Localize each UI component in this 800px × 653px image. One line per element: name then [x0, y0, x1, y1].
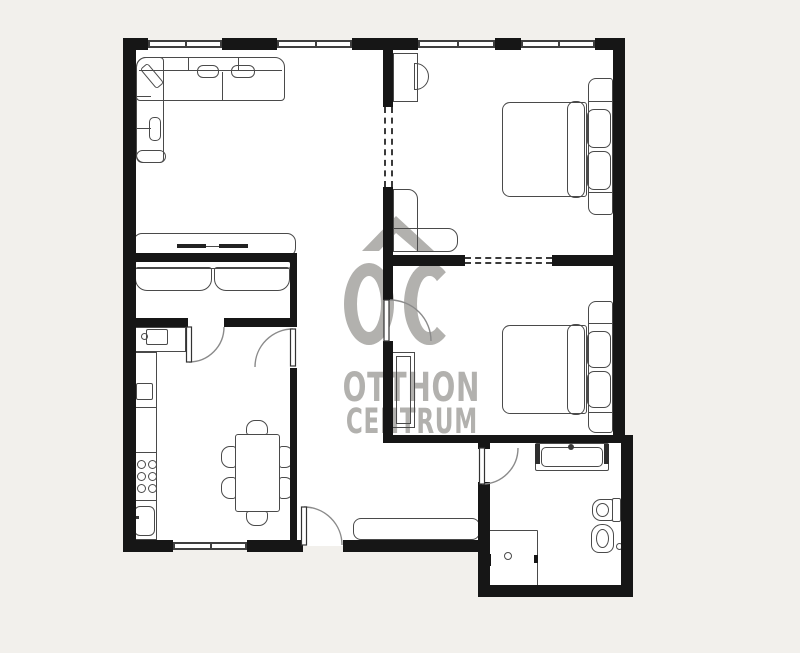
wall-bathroom-right	[621, 435, 633, 597]
wall-bathroom-top	[383, 435, 633, 443]
hob-burner-2	[148, 460, 157, 469]
window-top-3	[418, 40, 495, 48]
bed1-duvet-fold	[567, 101, 585, 198]
toilet-bowl-inner	[596, 503, 609, 517]
bed1-nightstand-line-top	[589, 101, 612, 102]
sofa-cushion-seam-1	[188, 58, 189, 71]
sofa-back-seam	[139, 70, 282, 71]
dining-chair-bottom	[246, 511, 268, 526]
wall-bedroom-divider-a	[390, 255, 465, 266]
bed2-pillow-2	[587, 371, 611, 408]
wall-top-3	[352, 38, 418, 50]
wall-right	[613, 38, 625, 443]
vanity-end-right	[604, 444, 609, 464]
bed1-pillow-1	[587, 109, 611, 148]
wall-kitchen-hall-a	[290, 253, 297, 327]
tv-screen-right	[219, 244, 248, 248]
sofa-arm	[136, 150, 166, 163]
kitchen-appliance-handle	[141, 333, 148, 340]
two-seat-sofa-cushion-2	[214, 267, 290, 291]
hob-burner-4	[148, 472, 157, 481]
two-seat-sofa-cushion-1	[135, 267, 212, 291]
wall-bottom-1	[123, 540, 173, 552]
shower-tray	[489, 530, 538, 589]
bed1-nightstand-line-bottom	[589, 192, 612, 193]
window-top-4	[521, 40, 595, 48]
wall-left	[123, 38, 136, 552]
sofa-tray-cushion-2	[231, 65, 255, 78]
wall-bottom-2	[247, 540, 303, 552]
bed2-pillow-1	[587, 331, 611, 368]
bed2-nightstand-line-bottom	[589, 412, 612, 413]
tv-screen-left	[177, 244, 206, 248]
dining-chair-top	[246, 420, 268, 435]
window-bottom-kitchen	[173, 542, 247, 550]
hob-burner-3	[137, 472, 146, 481]
dishwasher-icon	[136, 383, 153, 400]
bidet-inner	[596, 529, 609, 548]
sofa-chaise-seam-2	[137, 128, 151, 129]
dining-chair-left-1	[221, 446, 236, 468]
shower-drain	[504, 552, 512, 560]
wall-bedroom-divider-b	[552, 255, 613, 266]
wall-bottom-3	[343, 540, 490, 552]
bathroom-basin	[541, 447, 603, 467]
bed2-nightstand-line-top	[589, 323, 612, 324]
dashed-opening-bedroom1-bedroom2	[465, 257, 552, 264]
wall-corridor-c	[383, 341, 393, 435]
wall-sofaroom-kitchen-b	[224, 318, 297, 327]
hob-burner-1	[137, 460, 146, 469]
wall-bathroom-bottom	[478, 585, 633, 597]
hob-burner-5	[137, 484, 146, 493]
dining-chair-left-2	[221, 477, 236, 499]
wall-living-sofaroom	[127, 253, 297, 262]
sofa-seat-seam	[222, 72, 223, 100]
wall-corridor-b	[383, 187, 393, 300]
bedroom2-wardrobe-inner	[396, 356, 411, 424]
wall-bathroom-left-a	[478, 443, 490, 449]
sofa-chaise-seam-1	[137, 96, 151, 97]
wall-top-4	[495, 38, 521, 50]
sofa-cushion-seam-2	[238, 58, 239, 71]
wall-kitchen-hall-b	[290, 368, 297, 540]
dining-table	[235, 434, 280, 512]
watermark-logo-letter-c	[404, 263, 455, 345]
entry-sideboard	[353, 518, 480, 540]
bedroom1-corner-bench-horizontal	[393, 228, 458, 252]
dashed-opening-living-bedroom1	[384, 107, 393, 187]
toilet-tank	[612, 498, 621, 522]
side-table	[149, 117, 161, 141]
wall-corridor-a	[383, 50, 393, 107]
window-top-2	[277, 40, 352, 48]
kitchen-appliance	[146, 329, 168, 345]
floor-plan-canvas: OTTHON CENTRUM	[0, 0, 800, 653]
sofa-tray-cushion-1	[197, 65, 219, 78]
wall-bathroom-left-b	[478, 482, 490, 597]
kitchen-sink	[134, 506, 155, 536]
hob-burner-6	[148, 484, 157, 493]
window-top-1	[148, 40, 222, 48]
bed1-pillow-2	[587, 151, 611, 190]
wall-top-2	[222, 38, 277, 50]
shower-hinge-right	[534, 555, 538, 563]
wall-sofaroom-kitchen-a	[127, 318, 188, 327]
bed2-duvet-fold	[567, 324, 585, 415]
vanity-end-left	[535, 444, 540, 464]
vanity-faucet-dot	[568, 444, 574, 450]
